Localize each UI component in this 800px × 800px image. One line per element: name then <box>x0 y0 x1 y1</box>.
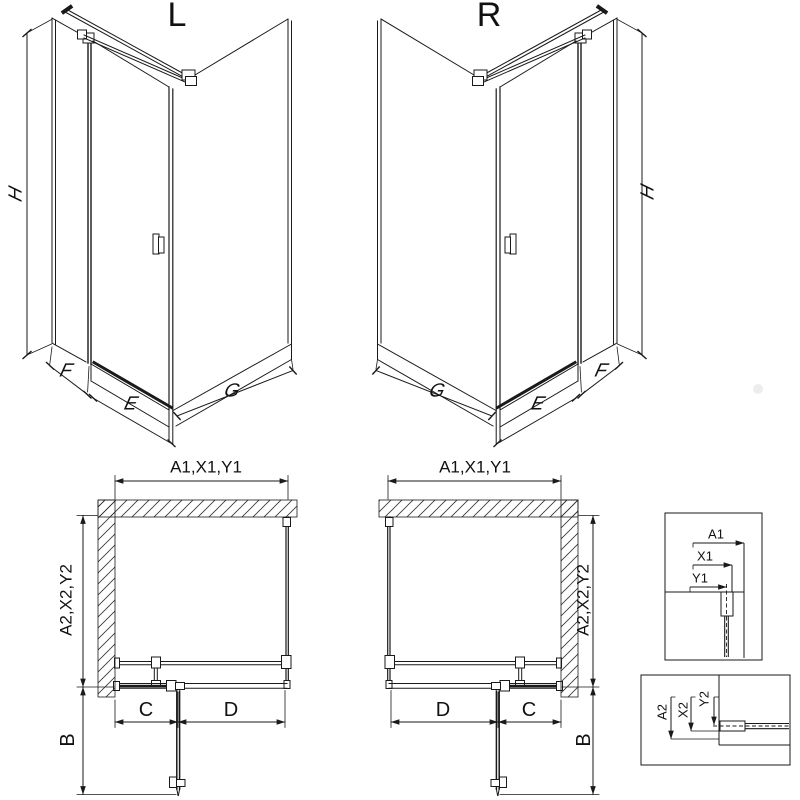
detail-box-bottom <box>641 675 790 765</box>
iso-view-r-linework <box>373 7 646 447</box>
technical-drawing-canvas: L R H F E G H F E G A1,X1,Y1 A2,X2,Y2 C … <box>0 0 800 800</box>
iso-view-l-linework <box>23 7 296 447</box>
drawing-linework <box>0 0 800 800</box>
detail-box-top <box>665 513 762 660</box>
plan-walls <box>98 500 578 697</box>
watermark-dot <box>753 384 763 394</box>
